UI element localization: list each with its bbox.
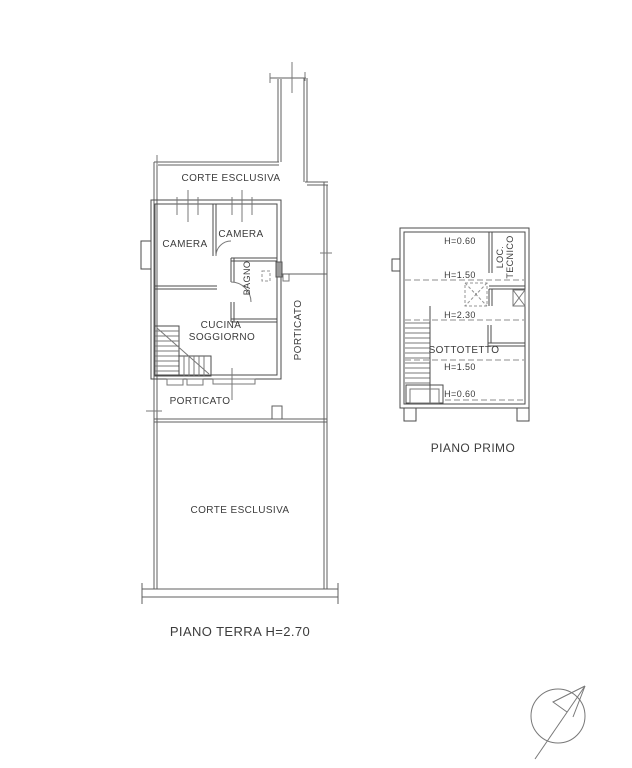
porch-pillar [272, 406, 282, 419]
bathroom-fixture [262, 271, 270, 281]
ground-floor-caption: PIANO TERRA H=2.70 [170, 624, 310, 639]
corte-esclusiva-top-label: CORTE ESCLUSIVA [182, 173, 281, 184]
top-passage-walls [270, 62, 328, 185]
skylight-marker [465, 283, 487, 306]
north-compass-icon [531, 686, 585, 759]
camera-left-label: CAMERA [162, 239, 207, 250]
porticato-front-label: PORTICATO [170, 396, 231, 407]
cucina-label: CUCINA [201, 320, 242, 331]
first-floor-caption: PIANO PRIMO [431, 441, 515, 455]
height-bottom-label: H=0.60 [444, 389, 476, 399]
height-230-label: H=2.30 [444, 310, 476, 320]
floor-plan-page: CORTE ESCLUSIVA CAMERA CAMERA BAGNO CUCI… [0, 0, 632, 768]
floor-plan-drawing: CORTE ESCLUSIVA CAMERA CAMERA BAGNO CUCI… [0, 0, 632, 768]
bagno-label: BAGNO [242, 261, 252, 296]
loc-tecnico-label-line2: TECNICO [505, 235, 515, 278]
height-top-label: H=0.60 [444, 236, 476, 246]
porticato-side-label: PORTICATO [293, 300, 304, 361]
height-150-lower-label: H=1.50 [444, 362, 476, 372]
hatched-fixture [513, 290, 525, 306]
camera-right-label: CAMERA [218, 229, 263, 240]
soggiorno-label: SOGGIORNO [189, 332, 255, 343]
bathroom-window [276, 262, 282, 277]
building-walls [141, 190, 327, 400]
loc-tecnico-label-line1: LOC. [495, 246, 505, 269]
door-swing-arc [216, 241, 231, 256]
corte-esclusiva-bottom-label: CORTE ESCLUSIVA [191, 505, 290, 516]
sottotetto-label: SOTTOTETTO [429, 345, 500, 356]
ground-floor-plan: CORTE ESCLUSIVA CAMERA CAMERA BAGNO CUCI… [141, 62, 338, 639]
first-floor-plan: H=0.60 LOC. TECNICO H=1.50 H=2.30 SOTTOT… [392, 228, 529, 455]
height-150-upper-label: H=1.50 [444, 270, 476, 280]
